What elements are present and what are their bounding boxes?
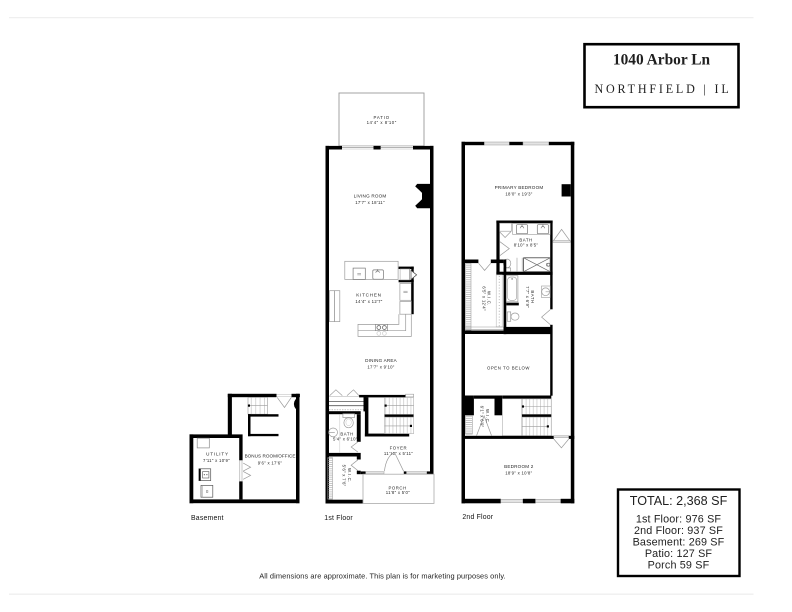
svg-text:5'4" x 6'10": 5'4" x 6'10": [333, 436, 358, 441]
svg-text:All dimensions are approximate: All dimensions are approximate. This pla…: [259, 572, 506, 581]
svg-text:17'7" x 9'10": 17'7" x 9'10": [367, 365, 394, 370]
svg-text:Basement: Basement: [191, 515, 224, 522]
svg-text:14'4" x 8'10": 14'4" x 8'10": [367, 120, 397, 125]
svg-text:6'5" x 12'4": 6'5" x 12'4": [482, 286, 487, 311]
svg-text:1040 Arbor Ln: 1040 Arbor Ln: [613, 52, 711, 69]
svg-text:UTILITY: UTILITY: [206, 451, 229, 456]
svg-text:Porch 59 SF: Porch 59 SF: [648, 559, 710, 571]
svg-text:1st Floor: 976 SF: 1st Floor: 976 SF: [636, 513, 722, 525]
svg-text:5'6" x 7'6": 5'6" x 7'6": [342, 465, 347, 487]
svg-text:Basement: 269 SF: Basement: 269 SF: [633, 536, 725, 548]
svg-text:LIVING ROOM: LIVING ROOM: [354, 194, 387, 199]
svg-text:18'9" x 10'8": 18'9" x 10'8": [505, 470, 532, 475]
svg-text:17'7" x 18'11": 17'7" x 18'11": [355, 200, 385, 205]
svg-text:2nd Floor: 2nd Floor: [462, 514, 493, 521]
svg-text:11'10" x 5'11": 11'10" x 5'11": [384, 451, 413, 456]
svg-text:OPEN TO BELOW: OPEN TO BELOW: [487, 366, 530, 371]
svg-text:9'6" x 17'6": 9'6" x 17'6": [258, 460, 283, 465]
svg-text:TOTAL: 2,368 SF: TOTAL: 2,368 SF: [630, 494, 728, 508]
svg-text:6'1" x 6'9": 6'1" x 6'9": [480, 406, 485, 428]
svg-text:7'7" x 6'9": 7'7" x 6'9": [525, 286, 530, 308]
svg-text:7'11" x 10'9": 7'11" x 10'9": [203, 458, 230, 463]
svg-text:8'10" x 8'5": 8'10" x 8'5": [514, 243, 539, 248]
svg-text:BEDROOM 2: BEDROOM 2: [504, 464, 534, 469]
svg-text:FOYER: FOYER: [390, 446, 408, 451]
svg-text:18'0" x 19'3": 18'0" x 19'3": [505, 191, 532, 196]
svg-text:1st Floor: 1st Floor: [324, 515, 353, 522]
svg-text:14'4" x 12'7": 14'4" x 12'7": [355, 299, 382, 304]
svg-text:NORTHFIELD | IL: NORTHFIELD | IL: [594, 82, 731, 96]
svg-text:Patio: 127 SF: Patio: 127 SF: [645, 548, 713, 560]
svg-text:11'8" x 5'0": 11'8" x 5'0": [386, 490, 410, 495]
svg-text:DINING AREA: DINING AREA: [365, 358, 398, 363]
svg-text:BONUS ROOM/OFFICE: BONUS ROOM/OFFICE: [245, 453, 296, 458]
svg-text:2nd Floor: 937 SF: 2nd Floor: 937 SF: [634, 525, 723, 537]
svg-text:PRIMARY BEDROOM: PRIMARY BEDROOM: [495, 185, 544, 190]
svg-text:KITCHEN: KITCHEN: [356, 293, 381, 298]
